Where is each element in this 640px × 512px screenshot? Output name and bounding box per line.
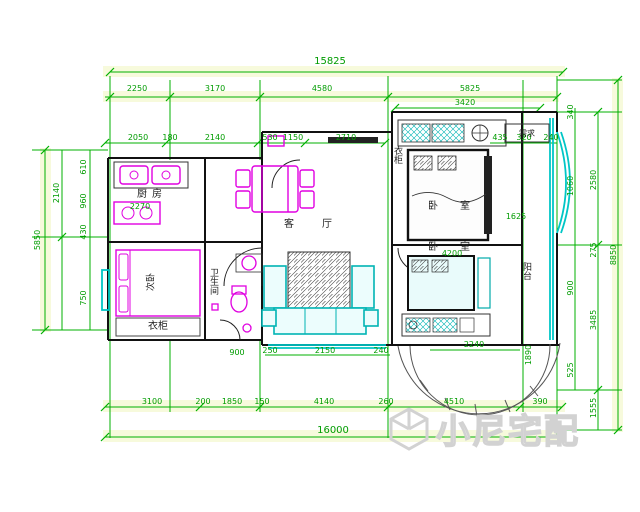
dim-right-seg-3: 3485 [590, 310, 598, 330]
dim-left-seg-4: 2140 [53, 183, 61, 203]
dim-tr-small-1: 435 [492, 134, 507, 142]
dim-right-seg-4: 1555 [590, 398, 598, 418]
dim-right-small-2: 1060 [567, 176, 575, 196]
dim-left-seg-1: 610 [80, 159, 88, 174]
dim-right-small-3: 900 [567, 280, 575, 295]
dim-bot-seg-5: 4140 [314, 398, 334, 406]
dim-top-seg-4: 5825 [460, 85, 480, 93]
label-wardrobe-vertical: 衣柜 [392, 146, 402, 164]
dim-bot-seg-8: 390 [532, 398, 547, 406]
label-wardrobe: 衣柜 [148, 322, 168, 332]
dim-top-seg-3: 4580 [312, 85, 332, 93]
dim-study: 1625 [506, 213, 526, 221]
dim-left-seg-3: 430 [80, 224, 88, 239]
room-label-living: 客厅 [284, 220, 360, 230]
dim-top-seg-1: 2250 [127, 85, 147, 93]
dim-small-6: 2710 [336, 134, 356, 142]
bathroom-fixtures [212, 254, 262, 332]
dim-small-2: 180 [162, 134, 177, 142]
dim-bot-seg-6: 260 [378, 398, 393, 406]
dim-bottom-total: 16000 [317, 427, 349, 435]
dim-right-small-1: 340 [567, 104, 575, 119]
dim-small-3: 2140 [205, 134, 225, 142]
dim-bot-seg-4: 150 [254, 398, 269, 406]
room-label-bedroom-bottom: 卧室 [428, 243, 492, 253]
dim-right-seg-2: 275 [590, 242, 598, 257]
dim-left-total: 5850 [34, 230, 42, 250]
room-label-kitchen: 厨房 [137, 190, 167, 200]
dining-set [236, 136, 314, 212]
dim-bot-seg-7: 4510 [444, 398, 464, 406]
room-label-bedroom-top: 卧室 [428, 202, 492, 212]
dim-balcony: 1890 [525, 345, 533, 365]
dim-tr-small-3: 240 [543, 134, 558, 142]
dim-small-5: 1150 [283, 134, 303, 142]
dim-right-total: 8850 [610, 245, 618, 265]
dim-right-small-4: 525 [567, 362, 575, 377]
room-label-balcony: 阳台 [521, 262, 531, 280]
dim-living-3: 240 [373, 347, 388, 355]
dim-small-4: 530 [262, 134, 277, 142]
dim-kitchen: 2270 [130, 203, 150, 211]
dim-right-seg-1: 2580 [590, 170, 598, 190]
dim-bot-seg-2: 200 [195, 398, 210, 406]
dim-living-1: 250 [262, 347, 277, 355]
label-note-top-right: 需求 [519, 128, 535, 139]
dim-bot-seg-3: 1850 [222, 398, 242, 406]
dim-top-seg-2: 3170 [205, 85, 225, 93]
dim-bot-seg-1: 3100 [142, 398, 162, 406]
dim-left-seg-2: 960 [80, 193, 88, 208]
room-label-bathroom: 卫生间 [208, 268, 218, 295]
floorplan-page: 15825 2250 3170 4580 5825 3420 2050 180 … [0, 0, 640, 512]
bottomright-bedroom-furniture [402, 256, 490, 336]
dim-living-2: 2150 [315, 347, 335, 355]
dim-bed-bottom: 2240 [464, 341, 484, 349]
dim-small-1: 2050 [128, 134, 148, 142]
dim-left-seg-5: 750 [80, 290, 88, 305]
dim-top-sub: 3420 [455, 99, 475, 107]
room-label-bedroom-left: 次卧 [144, 273, 157, 291]
dim-top-total: 15825 [314, 58, 346, 66]
dim-bath: 900 [229, 349, 244, 357]
